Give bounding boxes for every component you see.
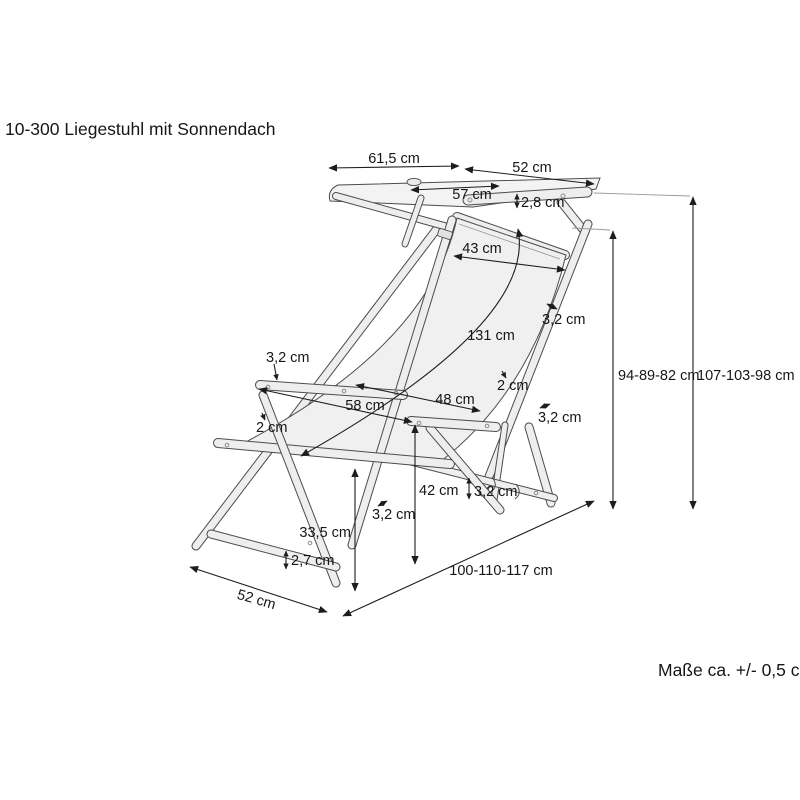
fabric-sling xyxy=(242,218,566,462)
dim-hem-left: 2 cm xyxy=(256,420,287,436)
dim-hem-right: 2 cm xyxy=(497,378,528,394)
dim-rear-leg-thickness: 3,2 cm xyxy=(538,410,582,426)
dim-base-width: 52 cm xyxy=(235,587,277,613)
dim-cross-bar-thickness: 2,7 cm xyxy=(291,553,335,569)
dim-armrest-height: 42 cm xyxy=(419,483,459,499)
dim-canopy-bar-thickness: 2,8 cm xyxy=(521,195,565,211)
dim-total-height: 107-103-98 cm xyxy=(697,368,795,384)
dim-back-rail-thickness: 3,2 cm xyxy=(542,312,586,328)
dim-seat-width: 48 cm xyxy=(435,392,475,408)
page-title: 10-300 Liegestuhl mit Sonnendach xyxy=(5,119,275,139)
dim-adjust-bar-thickness: 3,2 cm xyxy=(474,484,518,500)
product-diagram: 10-300 Liegestuhl mit Sonnendach Maße ca… xyxy=(0,0,800,800)
dim-armrest-length: 58 cm xyxy=(345,398,385,414)
dim-base-depth: 100-110-117 cm xyxy=(449,563,552,579)
diagram-page: 10-300 Liegestuhl mit Sonnendach Maße ca… xyxy=(0,0,800,800)
dim-seat-height: 33,5 cm xyxy=(299,525,351,541)
dim-canopy-depth: 57 cm xyxy=(452,187,492,203)
dim-front-leg-thickness: 3,2 cm xyxy=(372,507,416,523)
dim-fabric-top-width: 43 cm xyxy=(462,241,502,257)
dim-back-height: 94-89-82 cm xyxy=(618,368,699,384)
dim-fabric-length: 131 cm xyxy=(467,328,515,344)
tolerance-note: Maße ca. +/- 0,5 cm xyxy=(658,660,800,680)
canopy-hinge xyxy=(407,178,421,185)
dim-canopy-right: 52 cm xyxy=(512,160,552,176)
dim-armrest-thickness: 3,2 cm xyxy=(266,350,310,366)
dim-canopy-left: 61,5 cm xyxy=(368,151,420,167)
